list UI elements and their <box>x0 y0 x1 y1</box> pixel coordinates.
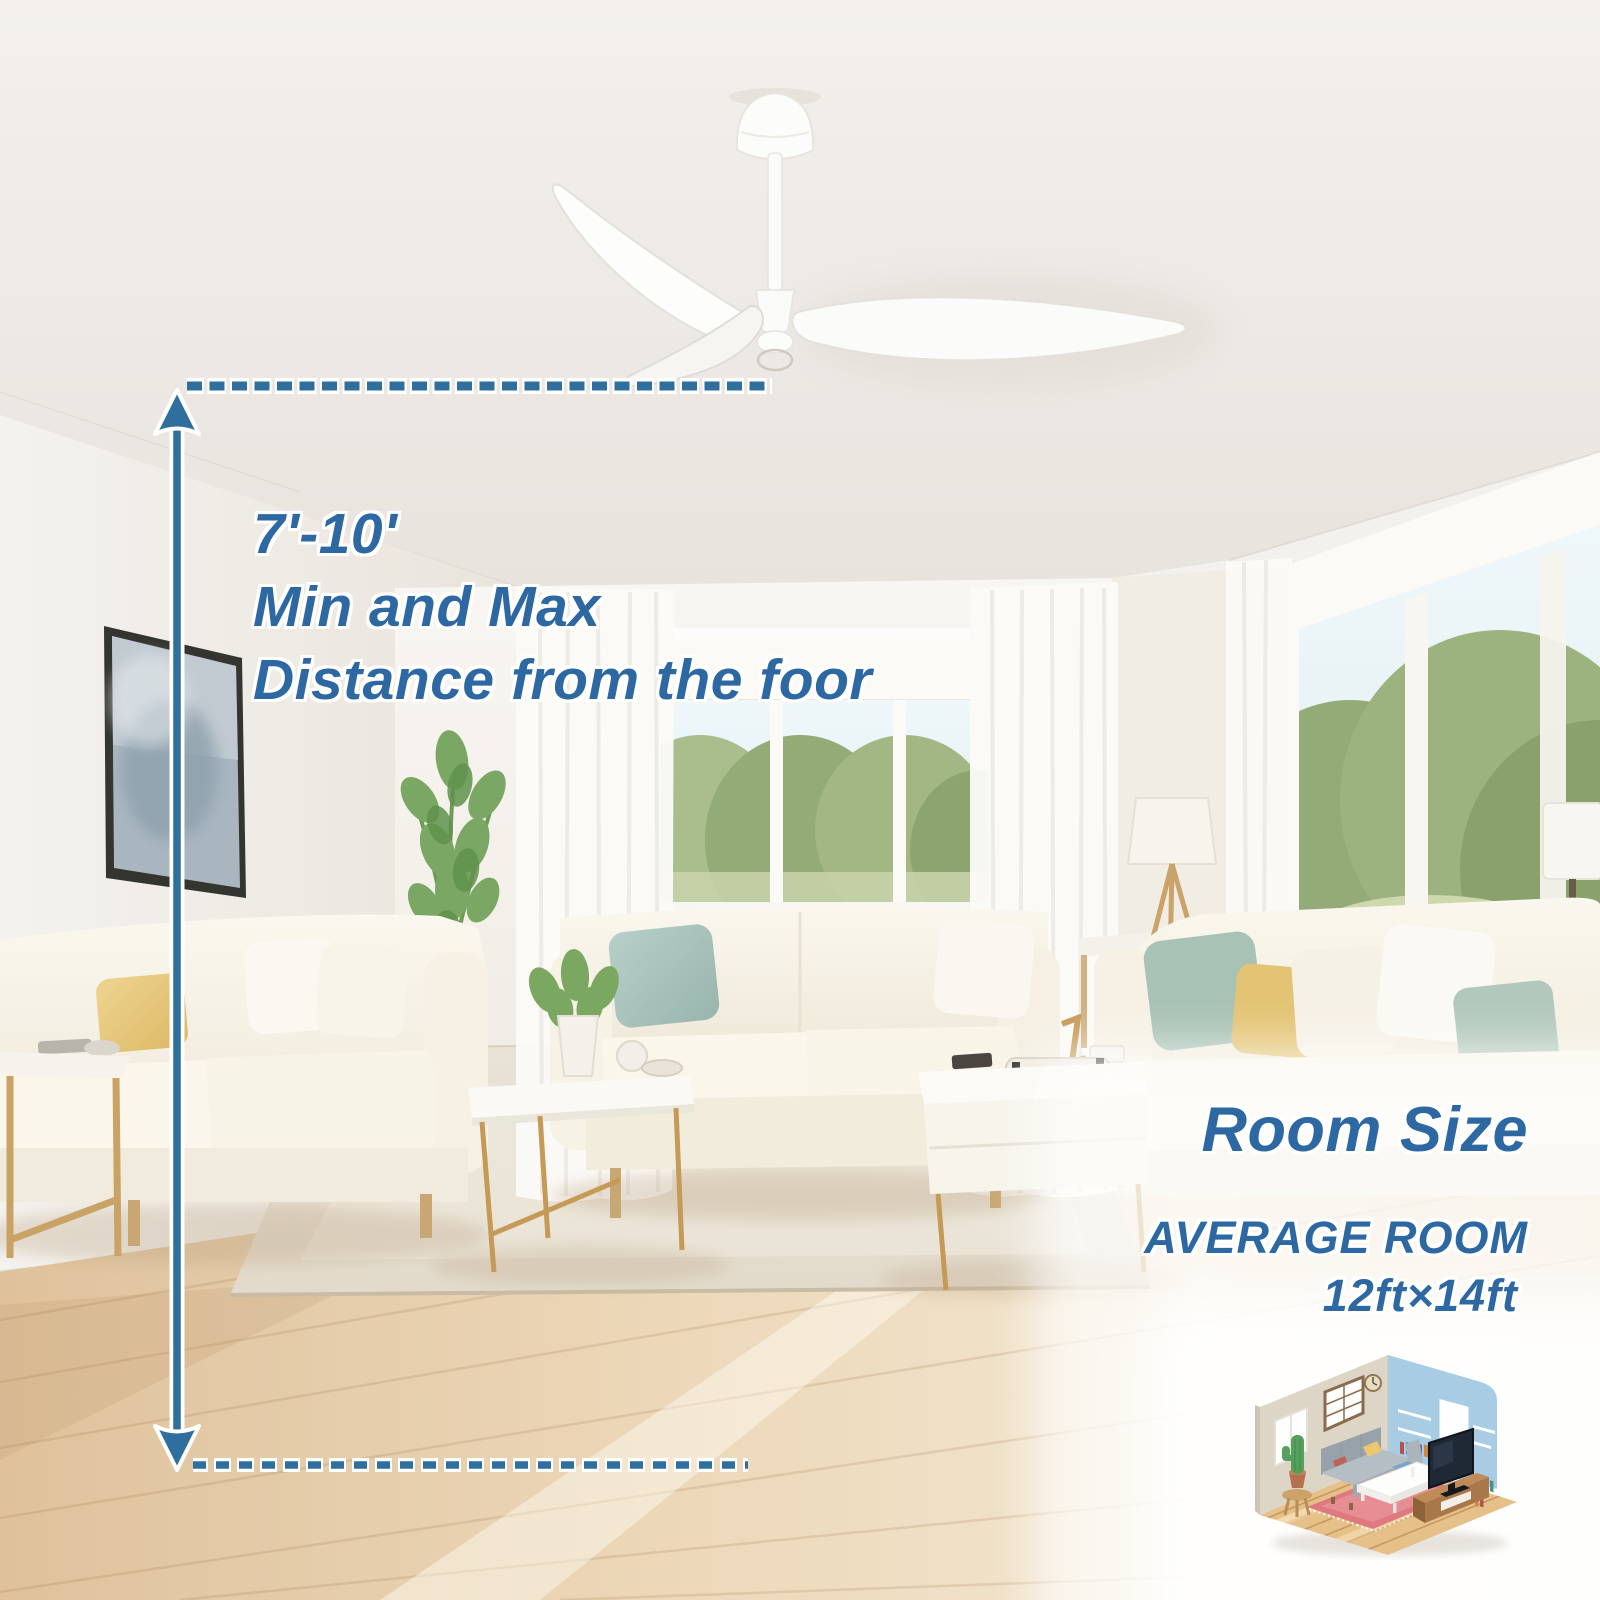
measurement-annotations <box>0 0 1600 1600</box>
room-size-title: Room Size <box>1201 1094 1528 1166</box>
height-range-value: 7'-10' <box>253 498 872 571</box>
height-range-line2: Min and Max <box>253 571 872 644</box>
product-infographic: 7'-10' Min and Max Distance from the foo… <box>0 0 1600 1600</box>
measure-arrow-icon <box>155 390 199 1470</box>
room-size-dimensions: 12ft×14ft <box>1323 1270 1518 1322</box>
height-range-line3: Distance from the foor <box>253 644 872 717</box>
room-size-subtitle: AVERAGE ROOM <box>1144 1212 1528 1264</box>
height-range-label: 7'-10' Min and Max Distance from the foo… <box>253 498 872 717</box>
